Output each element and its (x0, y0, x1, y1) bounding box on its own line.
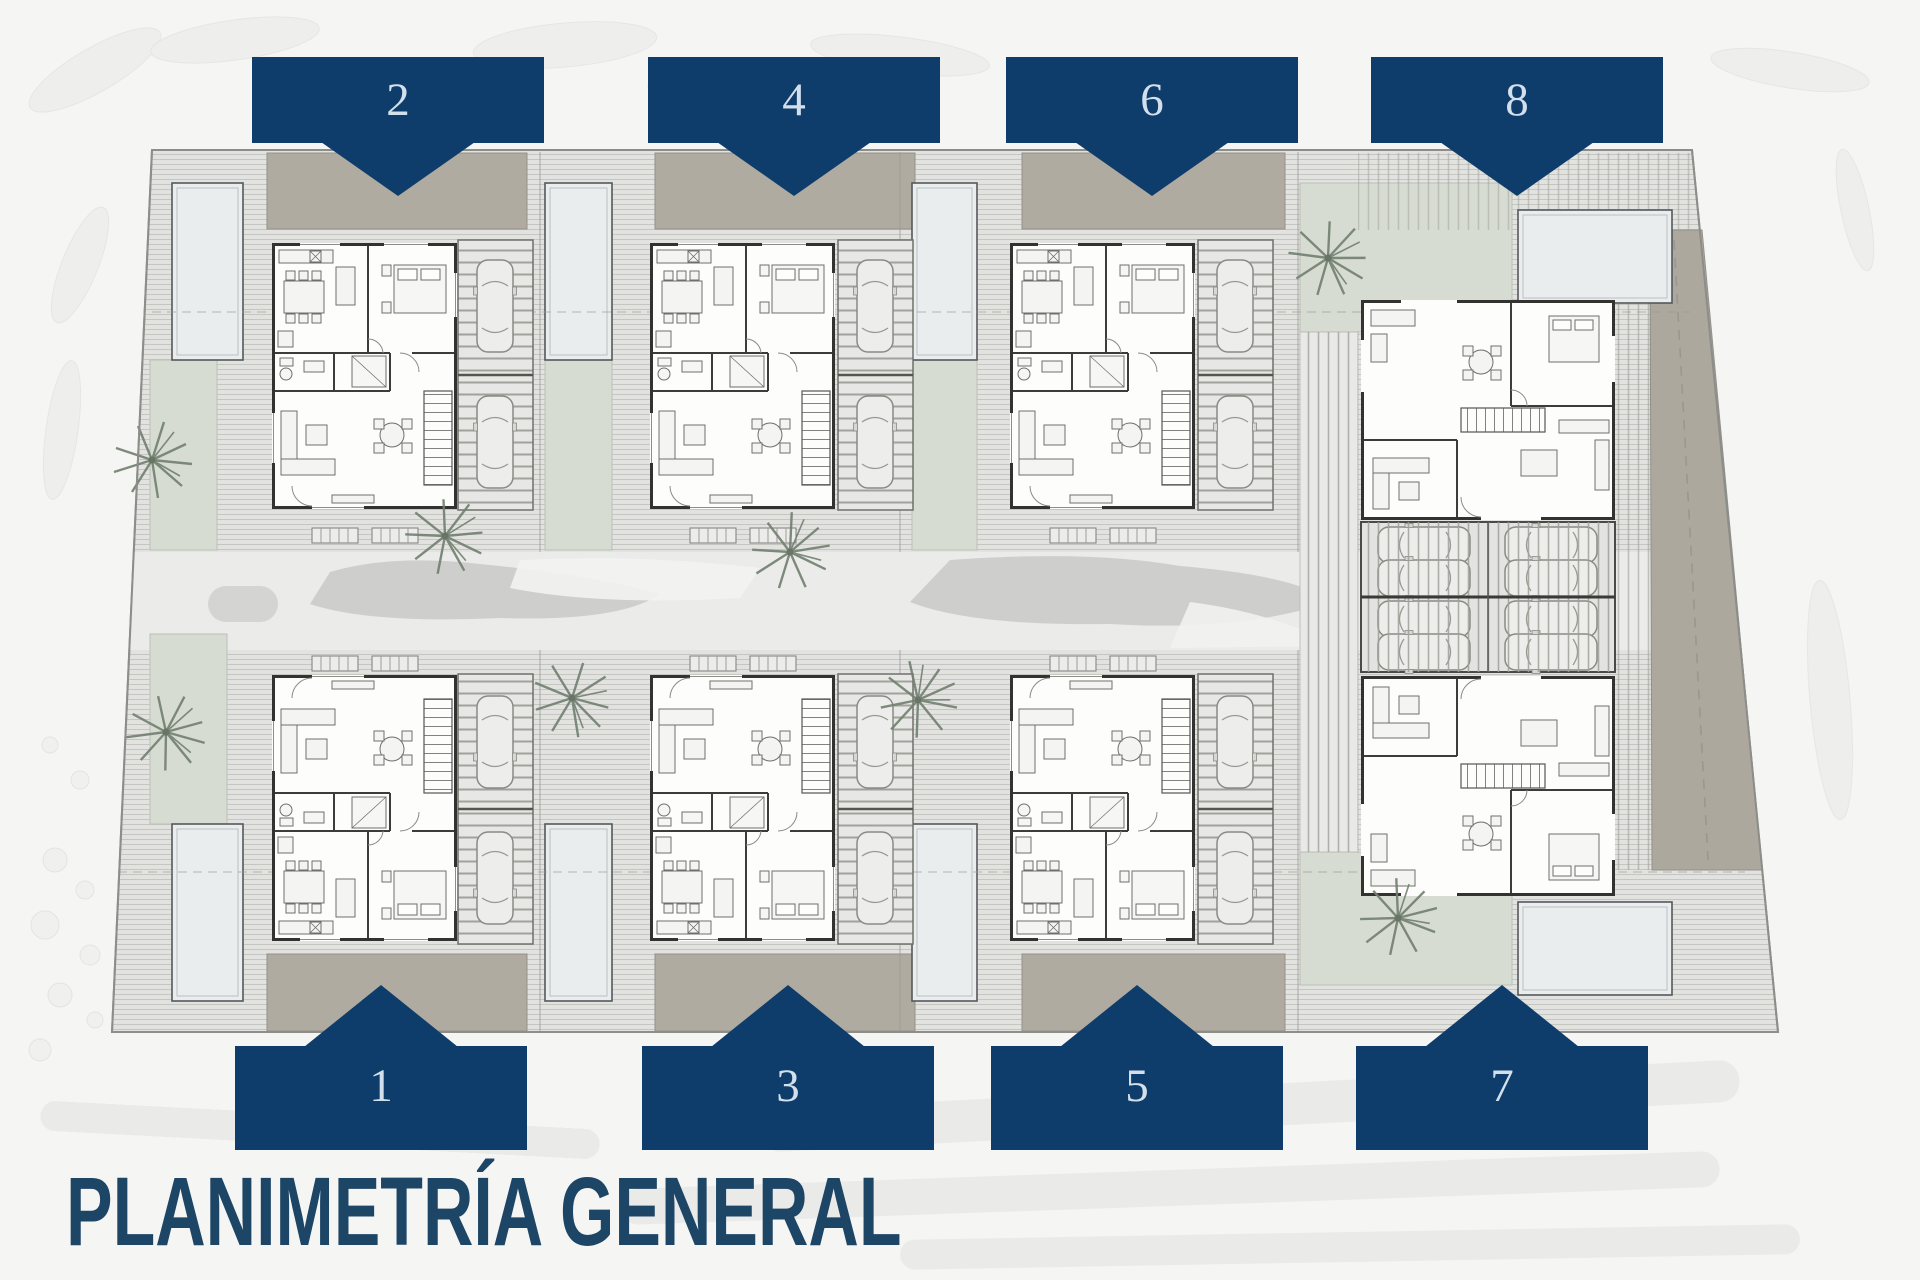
parking-court (1361, 522, 1615, 674)
unit-number: 2 (386, 77, 410, 124)
unit-number: 7 (1490, 1063, 1514, 1110)
unit-number: 6 (1140, 77, 1164, 124)
planimetry-page: 2 4 6 8 1 3 5 7 PLANIMETRÍA GENERAL (0, 0, 1920, 1280)
unit-3-floorplan (650, 675, 835, 941)
unit-5-floorplan (1010, 675, 1195, 941)
driveway (1650, 230, 1762, 870)
unit-6-floorplan (1010, 243, 1195, 509)
unit-2-floorplan (272, 243, 457, 509)
unit-1-floorplan (272, 675, 457, 941)
unit-number: 5 (1125, 1063, 1149, 1110)
page-title: PLANIMETRÍA GENERAL (66, 1160, 901, 1265)
unit-marker-3: 3 (642, 1046, 934, 1150)
unit-number: 4 (782, 77, 806, 124)
unit-marker-6: 6 (1006, 57, 1298, 143)
unit-7-floorplan (1361, 676, 1615, 896)
unit-marker-8: 8 (1371, 57, 1663, 143)
unit-marker-1: 1 (235, 1046, 527, 1150)
unit-marker-4: 4 (648, 57, 940, 143)
unit-marker-2: 2 (252, 57, 544, 143)
unit-4-floorplan (650, 243, 835, 509)
unit-marker-5: 5 (991, 1046, 1283, 1150)
unit-8-floorplan (1361, 300, 1615, 520)
unit-number: 8 (1505, 77, 1529, 124)
unit-number: 3 (776, 1063, 800, 1110)
unit-marker-7: 7 (1356, 1046, 1648, 1150)
unit-number: 1 (369, 1063, 393, 1110)
